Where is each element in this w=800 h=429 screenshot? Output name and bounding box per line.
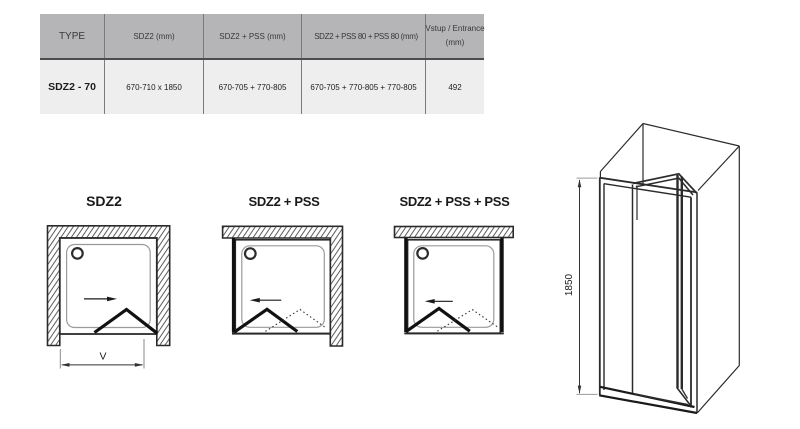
svg-text:1850: 1850 — [564, 273, 575, 296]
svg-text:V: V — [99, 351, 106, 363]
svg-text:SDZ2: SDZ2 — [86, 193, 122, 209]
svg-text:SDZ2 + PSS + PSS: SDZ2 + PSS + PSS — [399, 194, 510, 209]
svg-text:SDZ2 + PSS: SDZ2 + PSS — [248, 194, 320, 209]
